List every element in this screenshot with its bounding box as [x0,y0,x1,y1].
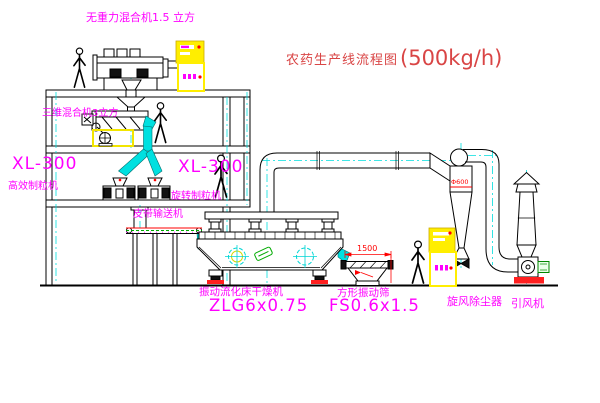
cyclone [450,149,518,272]
label-screen-model: FS0.6x1.5 [329,298,420,315]
granulator-right [137,178,171,200]
label-belt-conveyor: 皮带输送机 [133,210,183,220]
label-granulator-mid-name: 旋转制粒机 [171,192,221,202]
annotation-screen-dim: 1500 [357,245,377,253]
label-second-mixer: 三维混合机3立方 [42,109,118,119]
label-granulator-mid-model: XL-300 [178,159,243,176]
vibrating-screen [341,261,393,286]
flow-diagram-canvas: 农药生产线流程图 (500kg/h) 无重力混合机1.5 立方 三维混合机3立方… [0,0,600,403]
person-figure [412,241,424,283]
induced-draft-fan [514,173,549,284]
mixer-drive-highlight-box [93,130,133,146]
person-figure [74,48,85,87]
control-cabinet-top [176,41,204,91]
diagram-title: 农药生产线流程图 (500kg/h) [286,46,502,70]
control-cabinet-right [429,228,456,286]
label-granulator-left-name: 高效制粒机 [8,182,58,192]
granulator-left [102,178,136,200]
label-cyclone-name: 旋风除尘器 [447,296,502,307]
title-capacity: (500kg/h) [400,46,502,70]
annotation-cyclone-diameter: Φ600 [451,179,469,186]
fluid-bed-dryer [197,212,343,284]
label-top-mixer: 无重力混合机1.5 立方 [86,12,195,23]
label-fan-name: 引风机 [511,298,544,309]
title-text: 农药生产线流程图 [286,49,398,68]
label-granulator-left-model: XL-300 [12,156,77,173]
gravity-free-mixer [93,49,179,111]
label-dryer-model: ZLG6x0.75 [209,298,308,315]
person-figure [155,103,166,143]
belt-conveyor [126,228,202,285]
